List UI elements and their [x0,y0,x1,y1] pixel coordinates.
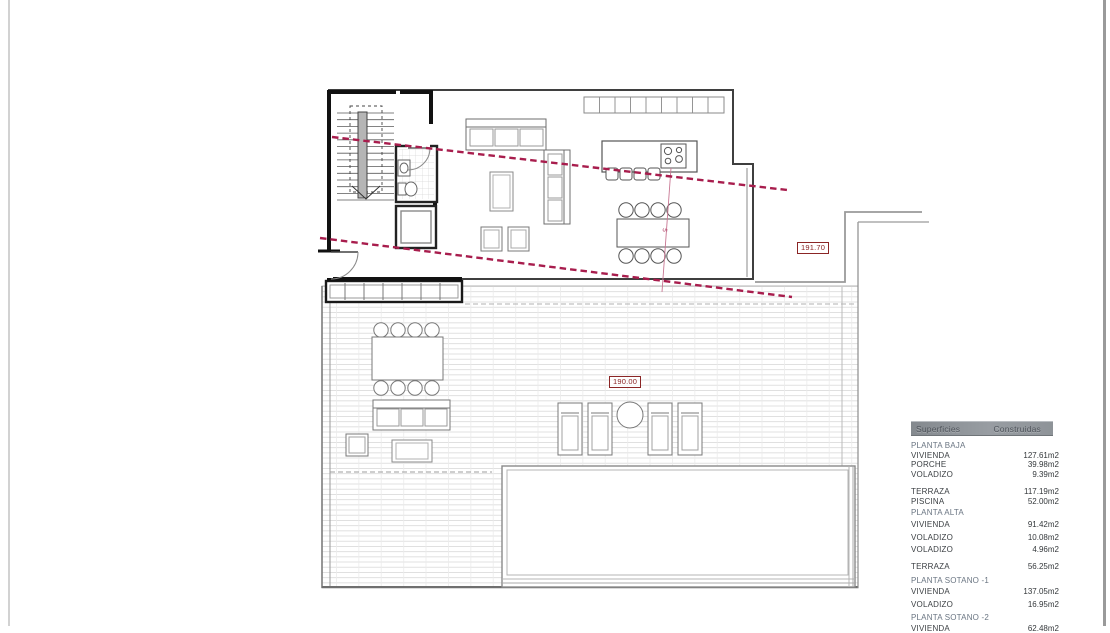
table-row: VOLADIZO 10.08m2 [911,533,1059,543]
table-row: VOLADIZO 4.96m2 [911,545,1059,555]
dining-table-set [617,203,689,263]
col-superficies: Superficies [916,424,960,434]
table-row: TERRAZA 117.19m2 [911,487,1059,497]
level-label-upper: 191.70 [797,242,829,254]
level-label-terrace: 190.00 [609,376,641,388]
table-row: TERRAZA 56.25m2 [911,562,1059,572]
sink [398,160,410,176]
table-row: VIVIENDA 127.61m2 [911,451,1059,461]
table-row: VIVIENDA 62.48m2 [911,624,1059,633]
table-row: VIVIENDA 91.42m2 [911,520,1059,530]
table-row: PLANTA SOTANO -2 [911,613,1059,623]
round-table [617,402,643,428]
areas-table: Superficies Construidas PLANTA BAJA VIVI… [911,421,1061,633]
table-row: VOLADIZO 16.95m2 [911,600,1059,610]
swimming-pool [502,466,855,587]
col-construidas: Construidas [993,424,1041,434]
table-row: PLANTA SOTANO -1 [911,576,1059,586]
table-row: PLANTA BAJA [911,441,1059,451]
outdoor-sofa [373,400,450,430]
table-row: PLANTA ALTA [911,508,1059,518]
table-row: VOLADIZO 9.39m2 [911,470,1059,480]
coffee-table [490,172,513,211]
table-row: PISCINA 52.00m2 [911,497,1059,507]
planter [326,281,462,302]
areas-table-header: Superficies Construidas [911,421,1053,436]
toilet [398,182,417,196]
kitchen-counter [584,97,724,113]
bathroom [396,144,437,202]
elevator-shaft [396,206,436,248]
table-row: PORCHE 39.98m2 [911,460,1059,470]
outdoor-coffee-table [392,440,432,462]
terrace-boundary [755,212,929,282]
side-table [346,434,368,456]
table-row: VIVIENDA 137.05m2 [911,587,1059,597]
